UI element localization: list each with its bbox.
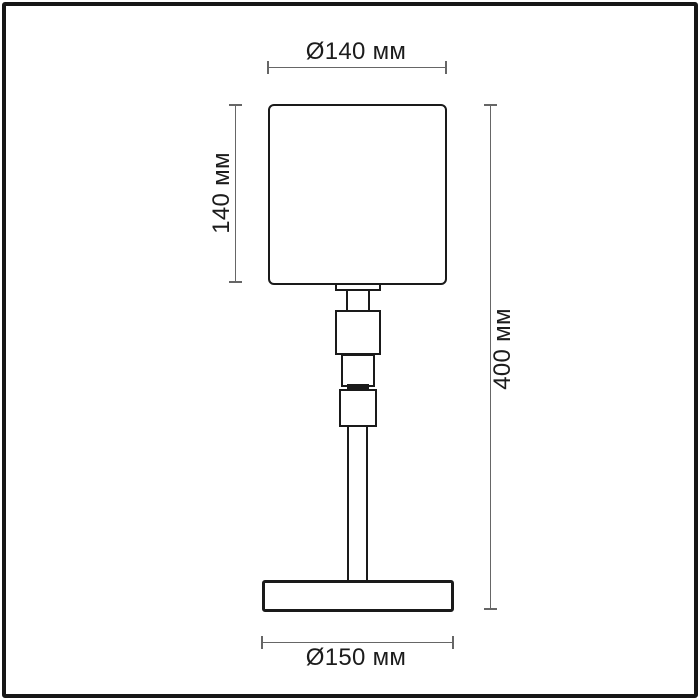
dimension-label-total-height: 400 мм xyxy=(491,308,515,390)
dimension-tick xyxy=(484,608,497,610)
base xyxy=(262,580,454,612)
dimension-label-shade-height: 140 мм xyxy=(210,152,234,234)
lampshade xyxy=(268,104,447,285)
dimension-label-base-diameter: Ø150 мм xyxy=(306,646,406,670)
dimension-line-shade-diameter xyxy=(268,67,447,68)
dimension-tick xyxy=(261,636,263,649)
lamp-dimension-drawing: Ø140 мм 140 мм 400 мм Ø150 мм xyxy=(0,0,700,700)
dimension-tick xyxy=(484,104,497,106)
upper-decor-block xyxy=(335,310,381,355)
stem xyxy=(347,424,368,582)
middle-decor-block xyxy=(341,354,375,387)
socket-neck xyxy=(346,288,370,312)
dimension-tick xyxy=(452,636,454,649)
dimension-line-shade-height xyxy=(235,105,236,283)
dimension-line-base-diameter xyxy=(262,642,454,643)
dimension-tick xyxy=(229,104,242,106)
dimension-tick xyxy=(445,61,447,74)
dimension-tick xyxy=(267,61,269,74)
lower-decor-block xyxy=(339,389,377,427)
dimension-tick xyxy=(229,281,242,283)
dimension-label-shade-diameter: Ø140 мм xyxy=(306,40,406,64)
